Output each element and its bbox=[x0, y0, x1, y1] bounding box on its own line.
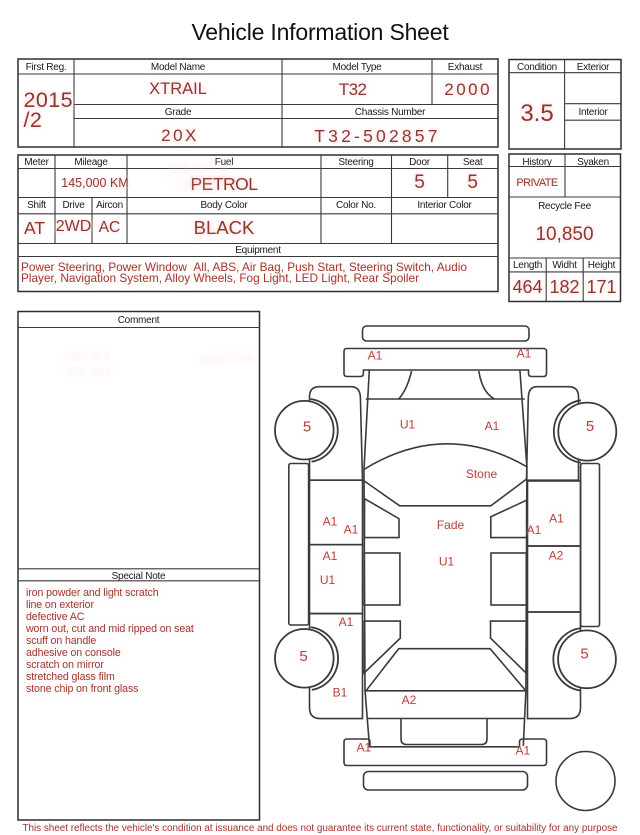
svg-text:U1: U1 bbox=[439, 555, 455, 569]
svg-text:Stone: Stone bbox=[466, 467, 498, 481]
svg-text:A1: A1 bbox=[527, 523, 542, 537]
svg-text:A1: A1 bbox=[357, 741, 372, 755]
svg-text:A1: A1 bbox=[485, 419, 500, 433]
svg-text:A1: A1 bbox=[344, 523, 359, 537]
svg-text:B1: B1 bbox=[333, 686, 348, 700]
svg-text:5: 5 bbox=[580, 646, 588, 663]
svg-text:A1: A1 bbox=[323, 549, 338, 563]
svg-text:5: 5 bbox=[586, 418, 594, 435]
svg-text:A1: A1 bbox=[549, 512, 564, 526]
svg-text:A1: A1 bbox=[323, 515, 338, 529]
svg-text:Fade: Fade bbox=[437, 518, 465, 532]
svg-text:A1: A1 bbox=[368, 349, 383, 363]
svg-text:A1: A1 bbox=[339, 615, 354, 629]
svg-text:5: 5 bbox=[303, 419, 311, 436]
svg-text:5: 5 bbox=[299, 648, 307, 665]
svg-text:U1: U1 bbox=[400, 418, 416, 432]
svg-text:A1: A1 bbox=[515, 744, 530, 758]
svg-text:A2: A2 bbox=[402, 693, 417, 707]
svg-text:A2: A2 bbox=[549, 549, 564, 563]
svg-text:A1: A1 bbox=[517, 347, 532, 361]
svg-text:U1: U1 bbox=[320, 573, 336, 587]
